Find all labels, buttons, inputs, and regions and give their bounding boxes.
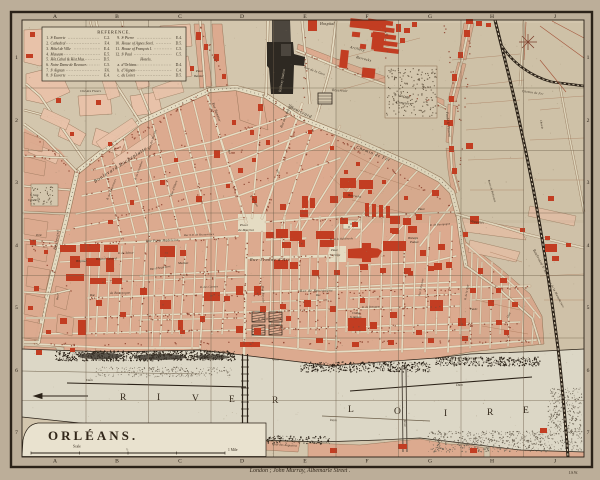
- svg-text:B: B: [115, 14, 119, 20]
- svg-text:Quai Barentin: Quai Barentin: [150, 352, 172, 357]
- svg-text:11.: 11.: [116, 47, 121, 51]
- svg-text:E: E: [303, 14, 307, 20]
- svg-text:Place: Place: [330, 248, 338, 252]
- svg-text:Quai Cypierre: Quai Cypierre: [205, 349, 228, 354]
- svg-text:Hospital: Hospital: [319, 22, 335, 26]
- svg-text:3.: 3.: [46, 47, 49, 51]
- svg-text:2: 2: [15, 118, 18, 124]
- svg-text:10.: 10.: [115, 42, 120, 46]
- svg-text:H: H: [490, 14, 494, 20]
- svg-text:D.5.: D.5.: [104, 58, 110, 62]
- svg-text:D.5.: D.5.: [176, 74, 182, 78]
- svg-text:Hotels.: Hotels.: [139, 57, 151, 62]
- svg-text:House of Agnes Sorel.: House of Agnes Sorel.: [121, 42, 155, 46]
- svg-text:Sᵗ Euverte: Sᵗ Euverte: [51, 74, 66, 78]
- svg-text:I: I: [444, 409, 447, 419]
- svg-text:5: 5: [587, 305, 590, 311]
- svg-text:Sᵗ Pierre: Sᵗ Pierre: [122, 36, 135, 40]
- svg-text:G: G: [428, 14, 432, 20]
- svg-text:1: 1: [15, 55, 18, 61]
- svg-text:E.4.: E.4.: [104, 74, 110, 78]
- svg-text:2: 2: [587, 118, 590, 124]
- svg-text:D.5.: D.5.: [176, 42, 182, 46]
- svg-text:O: O: [394, 407, 401, 417]
- svg-text:E.4.: E.4.: [176, 36, 182, 40]
- svg-text:3: 3: [15, 180, 18, 186]
- svg-text:REFERENCE.: REFERENCE.: [97, 30, 130, 35]
- svg-text:E: E: [229, 395, 235, 405]
- svg-text:F: F: [365, 14, 368, 20]
- svg-text:G: G: [428, 459, 432, 465]
- svg-text:E.5.: E.5.: [104, 52, 110, 56]
- svg-text:4: 4: [15, 243, 18, 249]
- svg-text:Rue Jeanne d'Arc: Rue Jeanne d'Arc: [249, 257, 291, 262]
- svg-text:de Bourgogne: de Bourgogne: [110, 291, 131, 295]
- svg-text:A: A: [53, 14, 57, 20]
- svg-text:Sᵗ Euverte: Sᵗ Euverte: [51, 36, 66, 40]
- svg-text:3: 3: [587, 180, 590, 186]
- svg-text:d’Aignan: d’Aignan: [122, 68, 136, 72]
- svg-text:D: D: [240, 14, 244, 20]
- svg-text:4: 4: [587, 243, 590, 249]
- svg-text:R: R: [487, 408, 494, 418]
- svg-text:C.5.: C.5.: [176, 47, 182, 51]
- svg-text:Sᵗ Paul: Sᵗ Paul: [122, 52, 132, 56]
- svg-text:6: 6: [587, 368, 590, 374]
- svg-text:C: C: [178, 459, 182, 465]
- svg-text:6.: 6.: [46, 63, 49, 67]
- svg-text:12.: 12.: [115, 52, 120, 56]
- svg-text:Sᵗ Aignan: Sᵗ Aignan: [51, 68, 65, 72]
- svg-text:D.4.: D.4.: [176, 63, 182, 67]
- svg-text:7: 7: [587, 430, 590, 436]
- svg-text:R: R: [272, 396, 279, 406]
- svg-text:E.4.: E.4.: [104, 47, 110, 51]
- svg-text:6: 6: [15, 368, 18, 374]
- svg-text:du Martroi: du Martroi: [238, 228, 254, 232]
- svg-text:2.: 2.: [46, 42, 49, 46]
- svg-text:D: D: [240, 459, 244, 465]
- svg-text:Cathedral: Cathedral: [51, 42, 66, 46]
- svg-text:ORLÉANS.: ORLÉANS.: [48, 428, 138, 443]
- svg-text:C.2.: C.2.: [104, 36, 110, 40]
- svg-text:Place: Place: [239, 223, 249, 227]
- svg-text:Market: Market: [177, 261, 189, 265]
- svg-text:B: B: [115, 459, 119, 465]
- svg-text:F.6.: F.6.: [105, 68, 111, 72]
- svg-text:7.: 7.: [46, 68, 49, 72]
- svg-text:I: I: [157, 393, 160, 403]
- svg-text:d’Orléans: d’Orléans: [122, 63, 138, 67]
- svg-text:Rue: Rue: [89, 293, 96, 297]
- svg-text:L: L: [348, 405, 354, 415]
- svg-text:1.: 1.: [46, 36, 49, 40]
- svg-text:F: F: [365, 459, 368, 465]
- svg-text:Palace: Palace: [409, 240, 419, 244]
- svg-text:E: E: [303, 459, 307, 465]
- svg-text:1: 1: [587, 55, 590, 61]
- svg-text:7: 7: [15, 430, 18, 436]
- svg-text:5.: 5.: [46, 58, 49, 62]
- svg-text:A: A: [53, 459, 57, 465]
- svg-text:C: C: [178, 14, 182, 20]
- svg-text:b.: b.: [117, 68, 120, 72]
- svg-text:4.: 4.: [46, 52, 49, 56]
- svg-text:1 Mile: 1 Mile: [228, 448, 238, 452]
- svg-text:Sᵗᵉ Croix: Sᵗᵉ Croix: [330, 253, 341, 257]
- svg-text:Rue de Bourgogne: Rue de Bourgogne: [299, 288, 333, 293]
- svg-text:V: V: [192, 394, 199, 404]
- svg-text:c.: c.: [117, 74, 120, 78]
- svg-text:Notre Dame de Recouvr.: Notre Dame de Recouvr.: [50, 63, 87, 67]
- svg-text:8.: 8.: [46, 74, 49, 78]
- svg-text:C.5.: C.5.: [104, 63, 110, 67]
- svg-text:C.5.: C.5.: [176, 52, 182, 56]
- svg-text:House of François I.: House of François I.: [121, 47, 153, 51]
- svg-text:du Loiret: du Loiret: [122, 74, 136, 78]
- svg-text:Sᵗ Aignan: Sᵗ Aignan: [350, 315, 362, 319]
- svg-text:Hôtel de Ville: Hôtel de Ville: [50, 47, 72, 51]
- svg-text:Hôt.Cabal & Hist.Mus.: Hôt.Cabal & Hist.Mus.: [50, 58, 86, 62]
- svg-text:5: 5: [15, 305, 18, 311]
- svg-text:a.: a.: [117, 63, 120, 67]
- svg-text:Scale: Scale: [73, 445, 81, 449]
- svg-text:R: R: [120, 393, 127, 403]
- svg-text:9.: 9.: [117, 36, 120, 40]
- svg-text:F.4.: F.4.: [105, 42, 111, 46]
- svg-text:H: H: [490, 459, 494, 465]
- svg-text:C.4.: C.4.: [176, 68, 182, 72]
- svg-text:E: E: [523, 406, 529, 416]
